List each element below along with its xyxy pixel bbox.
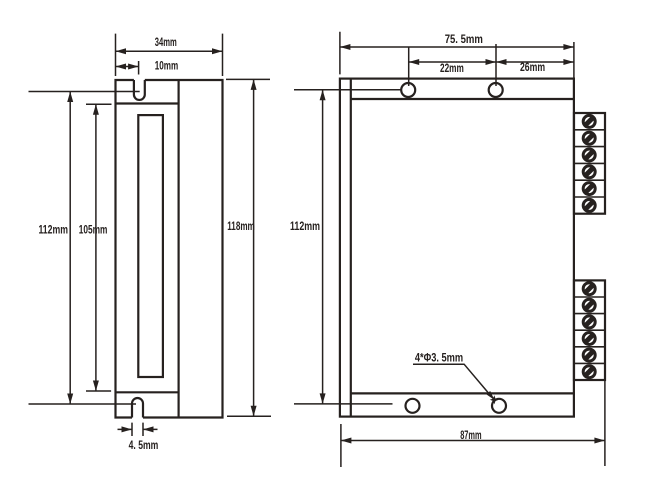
svg-text:112mm: 112mm xyxy=(290,221,320,233)
svg-text:4. 5mm: 4. 5mm xyxy=(129,440,159,452)
svg-text:22mm: 22mm xyxy=(440,63,464,75)
svg-text:26mm: 26mm xyxy=(520,62,545,74)
svg-text:87mm: 87mm xyxy=(460,430,481,442)
svg-text:105mm: 105mm xyxy=(79,224,108,236)
svg-text:75. 5mm: 75. 5mm xyxy=(445,34,483,46)
svg-text:10mm: 10mm xyxy=(155,61,179,73)
svg-text:4*Φ3. 5mm: 4*Φ3. 5mm xyxy=(415,353,463,365)
svg-text:34mm: 34mm xyxy=(155,37,177,49)
svg-text:118mm: 118mm xyxy=(227,221,255,233)
svg-text:112mm: 112mm xyxy=(38,224,68,236)
